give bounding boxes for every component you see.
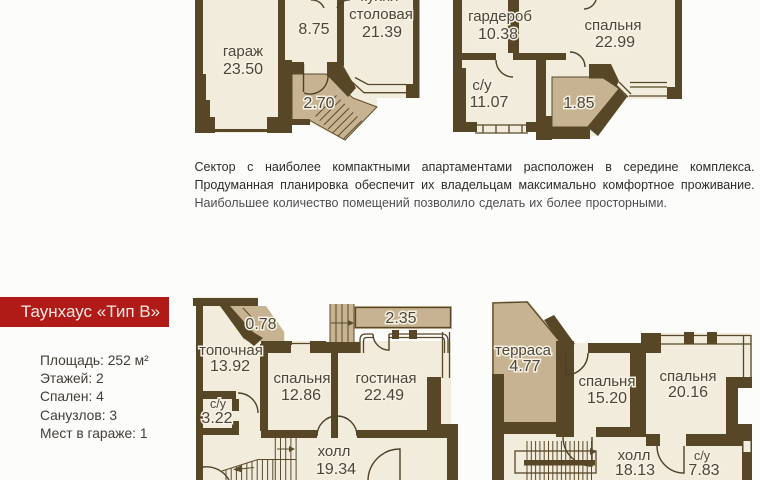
svg-text:8.75: 8.75 <box>298 21 329 38</box>
svg-text:12.86: 12.86 <box>281 387 321 404</box>
svg-text:2.35: 2.35 <box>385 310 416 327</box>
svg-text:холл: холл <box>318 443 351 460</box>
svg-text:23.50: 23.50 <box>223 61 263 78</box>
svg-text:гостиная: гостиная <box>356 370 417 387</box>
svg-text:спальня: спальня <box>660 368 717 385</box>
svg-text:21.39: 21.39 <box>362 24 402 41</box>
svg-text:топочная: топочная <box>199 342 263 359</box>
svg-text:с/у: с/у <box>472 77 492 94</box>
svg-text:с/у: с/у <box>210 397 227 411</box>
svg-text:гардероб: гардероб <box>468 8 532 25</box>
svg-text:13.92: 13.92 <box>210 358 250 375</box>
svg-text:гараж: гараж <box>223 43 263 60</box>
svg-text:20.16: 20.16 <box>668 384 708 401</box>
svg-text:3.22: 3.22 <box>201 410 232 427</box>
svg-text:15.20: 15.20 <box>587 390 627 407</box>
svg-text:с/у: с/у <box>694 449 711 463</box>
svg-text:кухня-: кухня- <box>360 0 403 5</box>
svg-text:столовая: столовая <box>349 6 413 23</box>
svg-text:2.70: 2.70 <box>303 95 334 112</box>
svg-text:7.83: 7.83 <box>688 462 719 479</box>
svg-text:0.78: 0.78 <box>245 316 276 333</box>
svg-text:18.13: 18.13 <box>615 462 655 479</box>
svg-text:10.38: 10.38 <box>478 26 518 43</box>
svg-text:спальня: спальня <box>274 370 331 387</box>
svg-text:1.85: 1.85 <box>563 95 594 112</box>
svg-text:22.49: 22.49 <box>364 387 404 404</box>
svg-text:19.34: 19.34 <box>316 461 356 478</box>
svg-text:22.99: 22.99 <box>595 34 635 51</box>
svg-text:спальня: спальня <box>585 17 642 34</box>
svg-text:11.07: 11.07 <box>470 94 509 111</box>
svg-text:4.77: 4.77 <box>509 358 540 375</box>
svg-text:спальня: спальня <box>579 373 636 390</box>
svg-text:терраса: терраса <box>495 342 552 359</box>
